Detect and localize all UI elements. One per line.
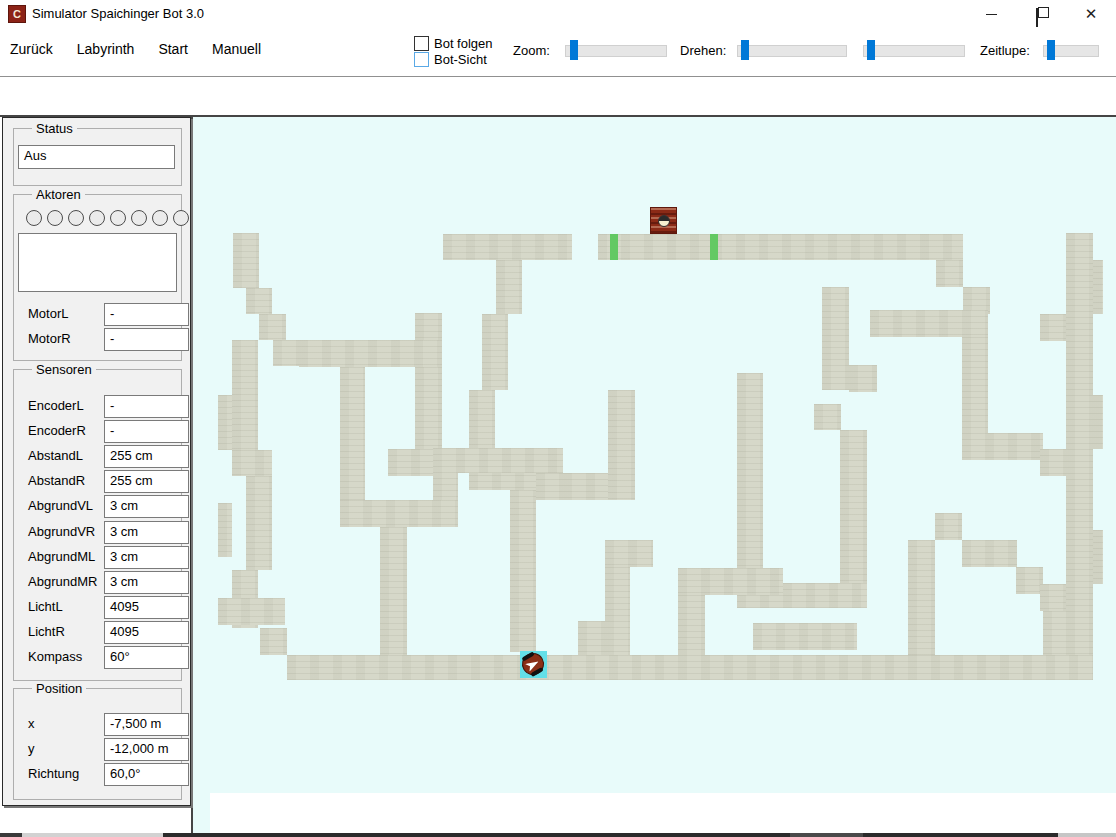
motor-field-motorl[interactable]: -: [104, 303, 189, 326]
sensor-field-abgrundvr[interactable]: 3 cm: [104, 521, 189, 544]
checkbox-box[interactable]: [414, 36, 429, 51]
menu-item-manuell[interactable]: Manuell: [212, 41, 261, 57]
bottom-strip-segment: [790, 833, 863, 837]
bottom-strip-segment: [163, 833, 790, 837]
aktoren-groupbox: Aktoren MotorL-MotorR-: [13, 194, 182, 361]
status-field[interactable]: Aus: [18, 145, 175, 169]
sensor-label-encoderr: EncoderR: [28, 423, 86, 438]
maze-wall: [962, 433, 1043, 460]
sensor-field-encoderr[interactable]: -: [104, 420, 189, 443]
position-label-y: y: [28, 741, 35, 756]
maze-wall: [605, 540, 653, 567]
bottom-strip-segment: [863, 833, 1058, 837]
sensor-label-encoderl: EncoderL: [28, 398, 84, 413]
bottom-strip-segment: [1058, 833, 1116, 837]
slider-track-3[interactable]: [1043, 45, 1099, 57]
slider-thumb-2[interactable]: [867, 40, 875, 60]
slider-thumb-0[interactable]: [570, 40, 578, 60]
status-groupbox-title: Status: [32, 121, 77, 136]
maze-wall: [299, 340, 442, 367]
slider-label-1: Drehen:: [680, 43, 726, 58]
checkbox-bot-sicht[interactable]: Bot-Sicht: [414, 52, 487, 67]
maze-wall: [678, 595, 705, 655]
side-panel: Status Aus Aktoren MotorL-MotorR- Sensor…: [2, 117, 191, 806]
maze-wall: [246, 476, 272, 570]
window-title: Simulator Spaichinger Bot 3.0: [32, 6, 204, 21]
sensor-field-abgrundml[interactable]: 3 cm: [104, 546, 189, 569]
led-indicator: [68, 210, 84, 226]
slider-label-0: Zoom:: [513, 43, 550, 58]
goal-block: [650, 207, 677, 234]
maze-wall: [218, 598, 285, 625]
sensor-field-abgrundmr[interactable]: 3 cm: [104, 571, 189, 594]
minimize-icon: [986, 14, 997, 15]
menu-bar: ZurückLabyrinthStartManuell: [10, 41, 261, 57]
maze-wall: [218, 503, 232, 557]
sensor-field-abstandr[interactable]: 255 cm: [104, 470, 189, 493]
position-label-richtung: Richtung: [28, 766, 79, 781]
maze-wall: [1040, 314, 1066, 341]
position-groupbox: Position x-7,500 my-12,000 mRichtung60,0…: [13, 688, 182, 800]
position-field-y[interactable]: -12,000 m: [104, 738, 189, 761]
maze-wall: [260, 628, 287, 655]
app-window: C Simulator Spaichinger Bot 3.0 ✕ Zurück…: [0, 0, 1116, 837]
maze-wall: [753, 623, 857, 650]
maze-wall: [849, 365, 877, 392]
led-indicator: [173, 210, 189, 226]
position-field-richtung[interactable]: 60,0°: [104, 763, 189, 786]
sensor-field-kompass[interactable]: 60°: [104, 646, 189, 669]
led-indicator: [110, 210, 126, 226]
green-marker: [610, 234, 618, 260]
maze-wall: [962, 540, 1017, 567]
maze-wall: [1093, 395, 1103, 449]
maze-wall: [962, 337, 988, 433]
maze-wall: [1040, 449, 1066, 476]
led-indicator: [47, 210, 63, 226]
maze-wall: [678, 568, 783, 595]
motor-label-motorl: MotorL: [28, 306, 68, 321]
maze-wall: [415, 367, 442, 449]
checkbox-label: Bot-Sicht: [434, 52, 487, 67]
slider-thumb-1[interactable]: [741, 40, 749, 60]
menu-item-labyrinth[interactable]: Labyrinth: [77, 41, 135, 57]
sensor-field-lichtr[interactable]: 4095: [104, 621, 189, 644]
robot: [520, 651, 547, 678]
slider-thumb-3[interactable]: [1047, 40, 1055, 60]
sensor-field-lichtl[interactable]: 4095: [104, 596, 189, 619]
maze-wall: [840, 430, 867, 583]
maze-viewport[interactable]: [193, 117, 1116, 833]
viewport-blank-area: [210, 793, 1116, 833]
position-groupbox-title: Position: [32, 681, 86, 696]
maze-wall: [870, 310, 988, 337]
sensor-label-abgrundvr: AbgrundVR: [28, 524, 95, 539]
sensor-label-lichtl: LichtL: [28, 599, 63, 614]
maze-wall: [1093, 260, 1103, 314]
robot-wheel-left: [521, 651, 534, 661]
minimize-button[interactable]: [968, 0, 1014, 28]
maze-wall: [510, 490, 536, 652]
sensor-label-kompass: Kompass: [28, 649, 82, 664]
maze-wall: [1040, 584, 1066, 611]
maze-wall: [380, 527, 407, 655]
maze-wall: [232, 450, 272, 476]
app-icon: C: [8, 5, 26, 23]
sensor-field-encoderl[interactable]: -: [104, 395, 189, 418]
position-field-x[interactable]: -7,500 m: [104, 713, 189, 736]
menu-item-start[interactable]: Start: [158, 41, 188, 57]
maze-wall: [259, 314, 286, 340]
checkbox-bot-folgen[interactable]: Bot folgen: [414, 36, 493, 51]
sensor-label-abgrundmr: AbgrundMR: [28, 574, 97, 589]
sensor-label-abstandr: AbstandR: [28, 473, 85, 488]
checkbox-label: Bot folgen: [434, 36, 493, 51]
maze-wall: [935, 513, 962, 540]
sensor-label-lichtr: LichtR: [28, 624, 65, 639]
sensor-label-abstandl: AbstandL: [28, 448, 83, 463]
sensor-field-abgrundvl[interactable]: 3 cm: [104, 495, 189, 518]
slider-label-3: Zeitlupe:: [980, 43, 1030, 58]
bottom-strip-segment: [0, 833, 22, 837]
robot-body: [518, 649, 548, 679]
sensoren-groupbox: Sensoren EncoderL-EncoderR-AbstandL255 c…: [13, 369, 182, 681]
sensor-label-abgrundvl: AbgrundVL: [28, 498, 93, 513]
restore-button[interactable]: [1018, 0, 1064, 28]
bottom-strip-segment: [22, 833, 163, 837]
maze-wall: [605, 567, 630, 655]
status-groupbox: Status Aus: [13, 128, 182, 186]
robot-wheel-right: [530, 667, 543, 677]
sensor-label-abgrundml: AbgrundML: [28, 549, 95, 564]
maze-wall: [340, 367, 365, 500]
aktoren-groupbox-title: Aktoren: [32, 187, 85, 202]
maze-wall: [433, 448, 563, 473]
slider-track-1[interactable]: [737, 45, 847, 57]
position-label-x: x: [28, 716, 35, 731]
maze-wall: [287, 655, 1093, 680]
maze-wall: [340, 500, 458, 527]
maze-wall: [822, 287, 849, 390]
slider-track-0[interactable]: [565, 45, 667, 57]
sensor-field-abstandl[interactable]: 255 cm: [104, 445, 189, 468]
toolbar-separator: [0, 76, 1116, 77]
maze-wall: [908, 540, 935, 655]
maze-wall: [232, 340, 258, 450]
maze-wall: [496, 260, 522, 314]
maze-wall: [936, 260, 963, 287]
green-marker: [710, 234, 718, 260]
maze-wall: [233, 233, 259, 288]
aktoren-textbox[interactable]: [18, 233, 177, 292]
maze-wall: [1093, 530, 1103, 584]
restore-icon: [1036, 9, 1047, 20]
maze-wall: [482, 314, 508, 390]
maze-wall: [415, 313, 442, 340]
maze-wall: [814, 404, 841, 430]
motor-field-motorr[interactable]: -: [104, 328, 189, 351]
maze-wall: [608, 390, 635, 500]
led-indicator: [26, 210, 42, 226]
led-indicator: [89, 210, 105, 226]
maze-wall: [443, 234, 572, 260]
motor-label-motorr: MotorR: [28, 331, 71, 346]
title-bar: C Simulator Spaichinger Bot 3.0 ✕: [0, 0, 1116, 30]
slider-track-2[interactable]: [863, 45, 965, 57]
checkbox-box[interactable]: [414, 52, 429, 67]
led-indicator: [131, 210, 147, 226]
menu-item-zurck[interactable]: Zurück: [10, 41, 53, 57]
goal-lamp-icon: [658, 215, 670, 227]
maze-wall: [536, 473, 563, 500]
maze-wall: [273, 340, 300, 366]
maze-wall: [246, 288, 272, 314]
maze-wall: [598, 234, 963, 260]
led-indicator: [152, 210, 168, 226]
maze-wall: [218, 395, 232, 450]
sensoren-groupbox-title: Sensoren: [32, 362, 96, 377]
close-icon: ✕: [1085, 5, 1098, 23]
close-button[interactable]: ✕: [1068, 0, 1114, 28]
maze-wall: [578, 621, 605, 655]
maze-wall: [1016, 567, 1043, 594]
maze-wall: [1066, 233, 1093, 655]
